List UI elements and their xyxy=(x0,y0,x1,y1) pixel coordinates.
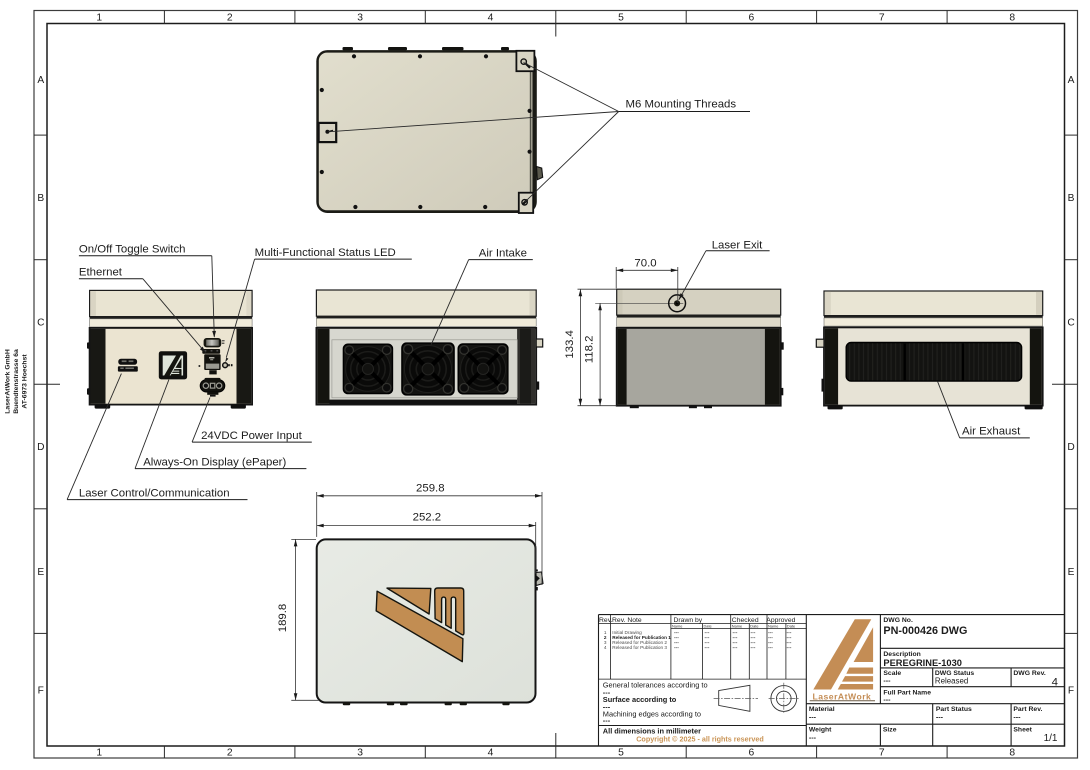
svg-text:Rev.: Rev. xyxy=(599,617,613,624)
svg-text:C: C xyxy=(37,318,44,329)
svg-text:B: B xyxy=(1068,193,1075,204)
svg-text:6: 6 xyxy=(749,12,755,23)
svg-text:F: F xyxy=(1068,685,1074,696)
svg-text:LaserAtWork GmbH: LaserAtWork GmbH xyxy=(5,349,12,414)
svg-text:A: A xyxy=(37,75,44,86)
svg-text:LaserAtWork: LaserAtWork xyxy=(813,691,872,701)
svg-text:Sheet: Sheet xyxy=(1013,727,1032,734)
svg-text:4: 4 xyxy=(488,12,494,23)
svg-text:252.2: 252.2 xyxy=(413,512,442,524)
svg-text:Date: Date xyxy=(704,624,712,629)
svg-text:Name: Name xyxy=(672,624,682,629)
svg-text:189.8: 189.8 xyxy=(277,604,289,633)
svg-text:General tolerances according t: General tolerances according to xyxy=(603,681,708,690)
svg-text:4: 4 xyxy=(488,748,494,759)
svg-text:Name: Name xyxy=(732,624,742,629)
svg-text:---: --- xyxy=(883,676,891,685)
svg-text:6: 6 xyxy=(749,748,755,759)
svg-text:Rev. Note: Rev. Note xyxy=(612,617,642,624)
svg-text:Machining edges according to: Machining edges according to xyxy=(603,709,701,718)
svg-text:2: 2 xyxy=(227,748,233,759)
svg-text:3: 3 xyxy=(357,12,363,23)
svg-text:F: F xyxy=(38,685,44,696)
svg-text:On/Off Toggle Switch: On/Off Toggle Switch xyxy=(79,244,186,256)
svg-text:118.2: 118.2 xyxy=(584,336,596,364)
svg-text:Multi-Functional Status LED: Multi-Functional Status LED xyxy=(255,247,396,259)
svg-text:---: --- xyxy=(809,713,817,722)
svg-text:Released: Released xyxy=(935,677,968,686)
svg-text:3: 3 xyxy=(357,748,363,759)
svg-text:259.8: 259.8 xyxy=(416,482,445,494)
svg-text:2: 2 xyxy=(227,12,233,23)
svg-text:Size: Size xyxy=(883,727,897,734)
svg-text:---: --- xyxy=(936,713,944,722)
svg-text:Always-On Display (ePaper): Always-On Display (ePaper) xyxy=(143,456,286,468)
svg-text:---: --- xyxy=(751,646,756,651)
svg-text:5: 5 xyxy=(618,12,624,23)
svg-text:4: 4 xyxy=(1052,676,1058,688)
svg-text:A: A xyxy=(1068,75,1075,86)
svg-text:E: E xyxy=(1068,567,1075,578)
svg-text:1: 1 xyxy=(96,12,102,23)
svg-text:---: --- xyxy=(603,716,611,725)
svg-text:Date: Date xyxy=(750,624,758,629)
svg-text:Ethernet: Ethernet xyxy=(79,267,123,279)
svg-text:---: --- xyxy=(787,646,792,651)
svg-text:C: C xyxy=(1067,318,1074,329)
svg-text:M6 Mounting Threads: M6 Mounting Threads xyxy=(626,99,737,111)
svg-text:Surface according to: Surface according to xyxy=(603,695,677,704)
svg-text:24VDC Power Input: 24VDC Power Input xyxy=(201,430,303,442)
svg-text:8: 8 xyxy=(1009,12,1015,23)
svg-text:PN-000426 DWG: PN-000426 DWG xyxy=(883,625,967,637)
svg-text:2: 2 xyxy=(604,635,607,640)
svg-text:---: --- xyxy=(674,646,679,651)
svg-text:1/1: 1/1 xyxy=(1044,733,1058,744)
svg-text:Air Exhaust: Air Exhaust xyxy=(962,425,1021,437)
svg-text:70.0: 70.0 xyxy=(634,257,656,269)
svg-text:Buendtenstrasse 6a: Buendtenstrasse 6a xyxy=(13,349,20,414)
svg-text:DWG No.: DWG No. xyxy=(883,617,913,624)
svg-text:Date: Date xyxy=(787,624,795,629)
svg-text:---: --- xyxy=(768,646,773,651)
svg-text:---: --- xyxy=(705,646,710,651)
svg-text:Laser Exit: Laser Exit xyxy=(712,239,763,251)
svg-text:Name: Name xyxy=(768,624,778,629)
svg-text:Copyright © 2025 - all rights: Copyright © 2025 - all rights reserved xyxy=(636,735,764,744)
svg-text:Released for Publication 1: Released for Publication 1 xyxy=(612,635,671,640)
svg-text:Description: Description xyxy=(883,651,920,658)
svg-text:4: 4 xyxy=(604,645,607,650)
svg-text:7: 7 xyxy=(879,748,885,759)
svg-text:Laser Control/Communication: Laser Control/Communication xyxy=(79,487,230,499)
svg-text:DWG Rev.: DWG Rev. xyxy=(1013,670,1045,677)
svg-text:---: --- xyxy=(733,646,738,651)
svg-text:Released for Publication 3: Released for Publication 3 xyxy=(612,645,667,650)
svg-text:8: 8 xyxy=(1009,748,1015,759)
svg-text:7: 7 xyxy=(879,12,885,23)
svg-text:1: 1 xyxy=(96,748,102,759)
svg-text:---: --- xyxy=(1013,713,1021,722)
svg-text:B: B xyxy=(37,193,44,204)
svg-text:Air Intake: Air Intake xyxy=(479,247,527,259)
svg-text:5: 5 xyxy=(618,748,624,759)
svg-text:D: D xyxy=(1067,442,1074,453)
svg-text:D: D xyxy=(37,442,44,453)
svg-text:133.4: 133.4 xyxy=(564,330,576,359)
svg-text:---: --- xyxy=(883,695,891,704)
svg-text:PEREGRINE-1030: PEREGRINE-1030 xyxy=(883,658,962,668)
svg-text:AT-6973 Hoechst: AT-6973 Hoechst xyxy=(22,354,29,409)
svg-text:E: E xyxy=(37,567,44,578)
svg-text:---: --- xyxy=(809,733,817,742)
